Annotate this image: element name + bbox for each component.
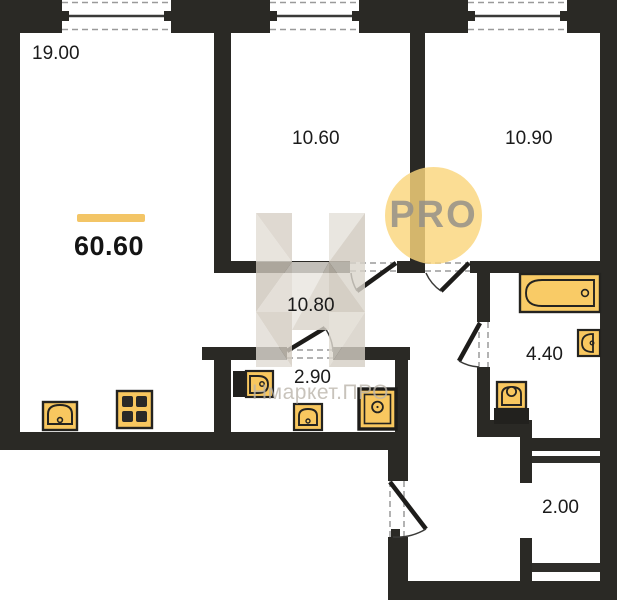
door-bedroom-2 [425,263,470,291]
room-area-label: 2.90 [294,368,331,387]
stove-icon [117,391,152,428]
door-bathroom [459,322,488,367]
room-area-label: 10.60 [292,129,340,148]
total-area-label: 60.60 [74,231,145,262]
room-area-label: 4.40 [526,345,563,364]
toilet-icon [494,382,529,424]
window [270,3,359,30]
room-area-label: 19.00 [32,44,80,63]
bathtub-icon [520,274,600,312]
room-area-label: 10.80 [287,296,335,315]
total-area-block: 60.60 [74,214,145,262]
room-area-label: 2.00 [542,498,579,517]
window [468,3,567,30]
basin-icon [294,404,322,430]
floor-plan: PRO Нмаркет.ПРО 19.00 10.60 10.90 10.80 … [0,0,622,600]
door-entrance [390,481,426,537]
bathroom-sink-icon [578,330,600,356]
pro-logo-label: PRO [389,194,477,237]
room-area-label: 10.90 [505,129,553,148]
window [62,3,171,30]
total-area-underline [77,214,145,222]
door-wc [287,328,333,358]
pro-logo-watermark: PRO [385,167,482,264]
kitchen-sink-icon [43,402,77,430]
brand-house-watermark [256,213,365,367]
